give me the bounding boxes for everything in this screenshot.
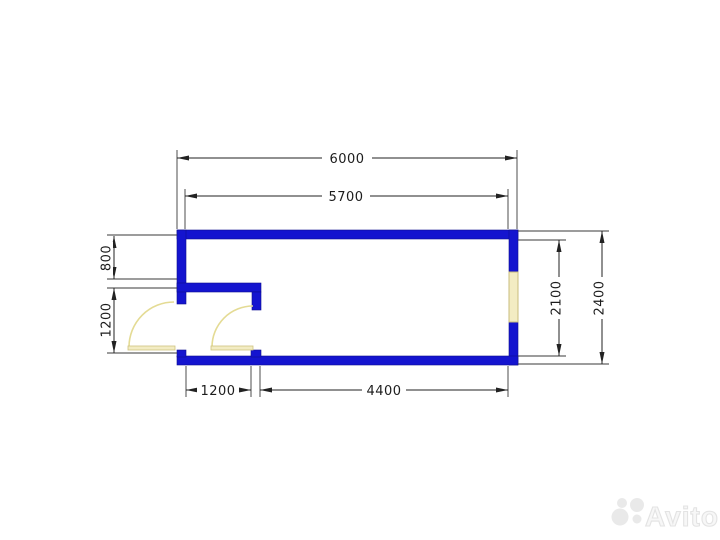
dimension-label-bottom-room: 4400 <box>366 384 401 399</box>
avito-watermark: Avito <box>612 498 719 532</box>
bottom-wall <box>177 356 518 365</box>
dimension-label-bottom-vestibule: 1200 <box>200 384 235 399</box>
middle-door-swing-arc <box>212 306 253 347</box>
floor-plan-canvas: 6000 5700 800 1200 2100 <box>0 0 720 540</box>
left-door-leaf <box>128 346 175 350</box>
dimension-inner-width: 5700 <box>185 189 508 229</box>
arrowhead-left <box>260 388 272 393</box>
avito-logo-circle-bottom-right <box>633 515 642 524</box>
dimension-bottom-vestibule: 1200 <box>186 366 251 399</box>
arrowhead-right <box>505 156 517 161</box>
arrowhead-left <box>185 194 197 199</box>
left-door-swing-arc <box>129 302 174 347</box>
arrowhead-right <box>496 194 508 199</box>
dimension-label-left-upper: 800 <box>100 245 115 271</box>
arrowhead-up <box>600 231 605 243</box>
arrowhead-left <box>186 388 198 393</box>
dimension-bottom-room: 4400 <box>260 366 508 399</box>
window <box>509 272 518 322</box>
arrowhead-right <box>239 388 251 393</box>
arrowhead-down <box>600 352 605 364</box>
arrowhead-down <box>112 341 117 353</box>
doors <box>128 302 253 350</box>
avito-logo-circle-bottom-left <box>612 509 629 526</box>
dimension-label-overall-width: 6000 <box>329 152 364 167</box>
left-wall <box>177 230 186 304</box>
arrowhead-up <box>557 240 562 252</box>
dimension-label-inner-height: 2100 <box>550 280 565 315</box>
right-wall-upper-segment <box>509 230 518 272</box>
dimension-label-inner-width: 5700 <box>328 190 363 205</box>
vestibule-wall-horizontal <box>177 283 261 292</box>
avito-logo-circle-top-left <box>617 498 627 508</box>
bottom-wall-jamb-left <box>177 350 186 357</box>
top-wall <box>177 230 518 239</box>
avito-logo-circle-top-right <box>630 498 644 512</box>
avito-watermark-text: Avito <box>645 501 719 532</box>
arrowhead-left <box>177 156 189 161</box>
middle-door-leaf <box>211 346 253 350</box>
dimension-left-upper: 800 <box>99 235 177 279</box>
dimension-inner-height: 2100 <box>518 240 566 356</box>
vestibule-wall-stub <box>252 292 261 310</box>
floor-plan-drawing: 6000 5700 800 1200 2100 <box>0 0 720 540</box>
walls <box>177 230 518 365</box>
arrowhead-up <box>112 288 117 300</box>
dimension-label-overall-height: 2400 <box>593 280 608 315</box>
dimension-label-left-door: 1200 <box>100 302 115 337</box>
bottom-wall-jamb-middle <box>251 350 261 357</box>
arrowhead-right <box>496 388 508 393</box>
arrowhead-down <box>557 344 562 356</box>
